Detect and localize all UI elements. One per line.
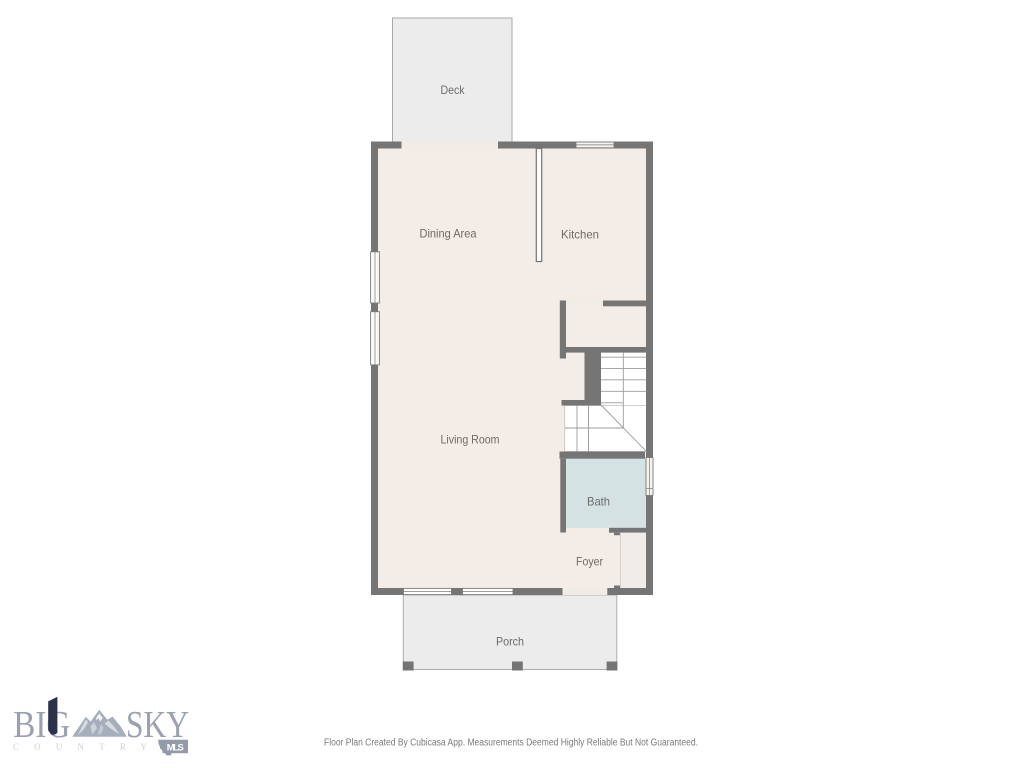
svg-text:MLS: MLS [167, 742, 184, 753]
svg-text:Living Room: Living Room [441, 433, 500, 447]
svg-text:Porch: Porch [496, 635, 524, 649]
svg-text:SKY: SKY [126, 704, 189, 746]
svg-text:Foyer: Foyer [576, 555, 603, 569]
svg-text:Bath: Bath [587, 495, 610, 509]
svg-text:Floor Plan Created By Cubicasa: Floor Plan Created By Cubicasa App. Meas… [324, 738, 698, 749]
svg-text:Dining Area: Dining Area [420, 227, 477, 241]
svg-text:BIG: BIG [13, 704, 70, 746]
svg-text:Kitchen: Kitchen [561, 228, 599, 242]
svg-text:Deck: Deck [441, 83, 466, 97]
